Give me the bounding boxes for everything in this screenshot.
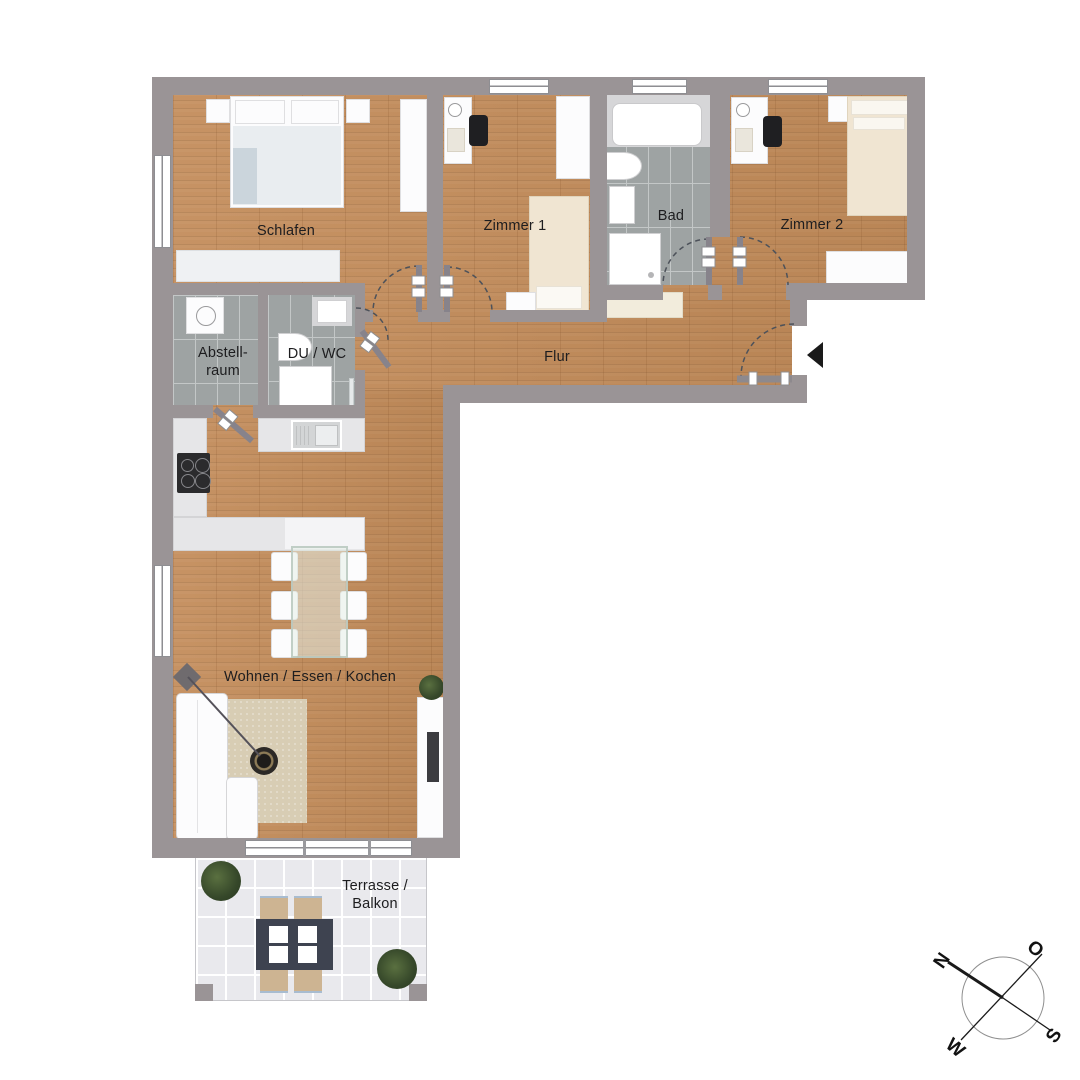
room-label-zimmer2: Zimmer 2 bbox=[762, 216, 862, 234]
room-label-abstellraum-line1: Abstell- bbox=[173, 344, 273, 362]
door-hinge-marks bbox=[218, 247, 789, 430]
room-label-terrasse-line2: Balkon bbox=[325, 895, 425, 913]
room-label-abstellraum-line2: raum bbox=[173, 362, 273, 380]
room-label-abstellraum: Abstell- raum bbox=[173, 344, 273, 380]
plan-overlay: N O S W bbox=[0, 0, 1080, 1080]
compass-rose-icon: N O S W bbox=[930, 936, 1067, 1062]
room-label-schlafen: Schlafen bbox=[236, 222, 336, 240]
room-label-duwc: DU / WC bbox=[267, 345, 367, 363]
compass-west-label: W bbox=[941, 1034, 968, 1062]
door-arc-entry bbox=[741, 324, 794, 377]
room-label-flur: Flur bbox=[517, 348, 597, 366]
compass-north-label: N bbox=[930, 949, 955, 972]
entry-arrow-icon bbox=[807, 342, 823, 368]
room-label-zimmer1: Zimmer 1 bbox=[465, 217, 565, 235]
room-label-wohnen: Wohnen / Essen / Kochen bbox=[210, 668, 410, 686]
door-arc-zimmer2 bbox=[740, 237, 788, 285]
compass-south-label: S bbox=[1042, 1025, 1066, 1047]
room-label-terrasse: Terrasse / Balkon bbox=[325, 877, 425, 913]
apartment-floor-plan: N O S W Schlafen Zimmer 1 Bad Zimmer 2 A… bbox=[0, 0, 1080, 1080]
room-label-bad: Bad bbox=[646, 207, 696, 225]
room-label-terrasse-line1: Terrasse / bbox=[325, 877, 425, 895]
arc-lamp-arm bbox=[188, 677, 260, 756]
door-leaves bbox=[215, 237, 792, 441]
compass-east-label: O bbox=[1023, 936, 1048, 962]
door-arc-zimmer1 bbox=[447, 267, 492, 312]
